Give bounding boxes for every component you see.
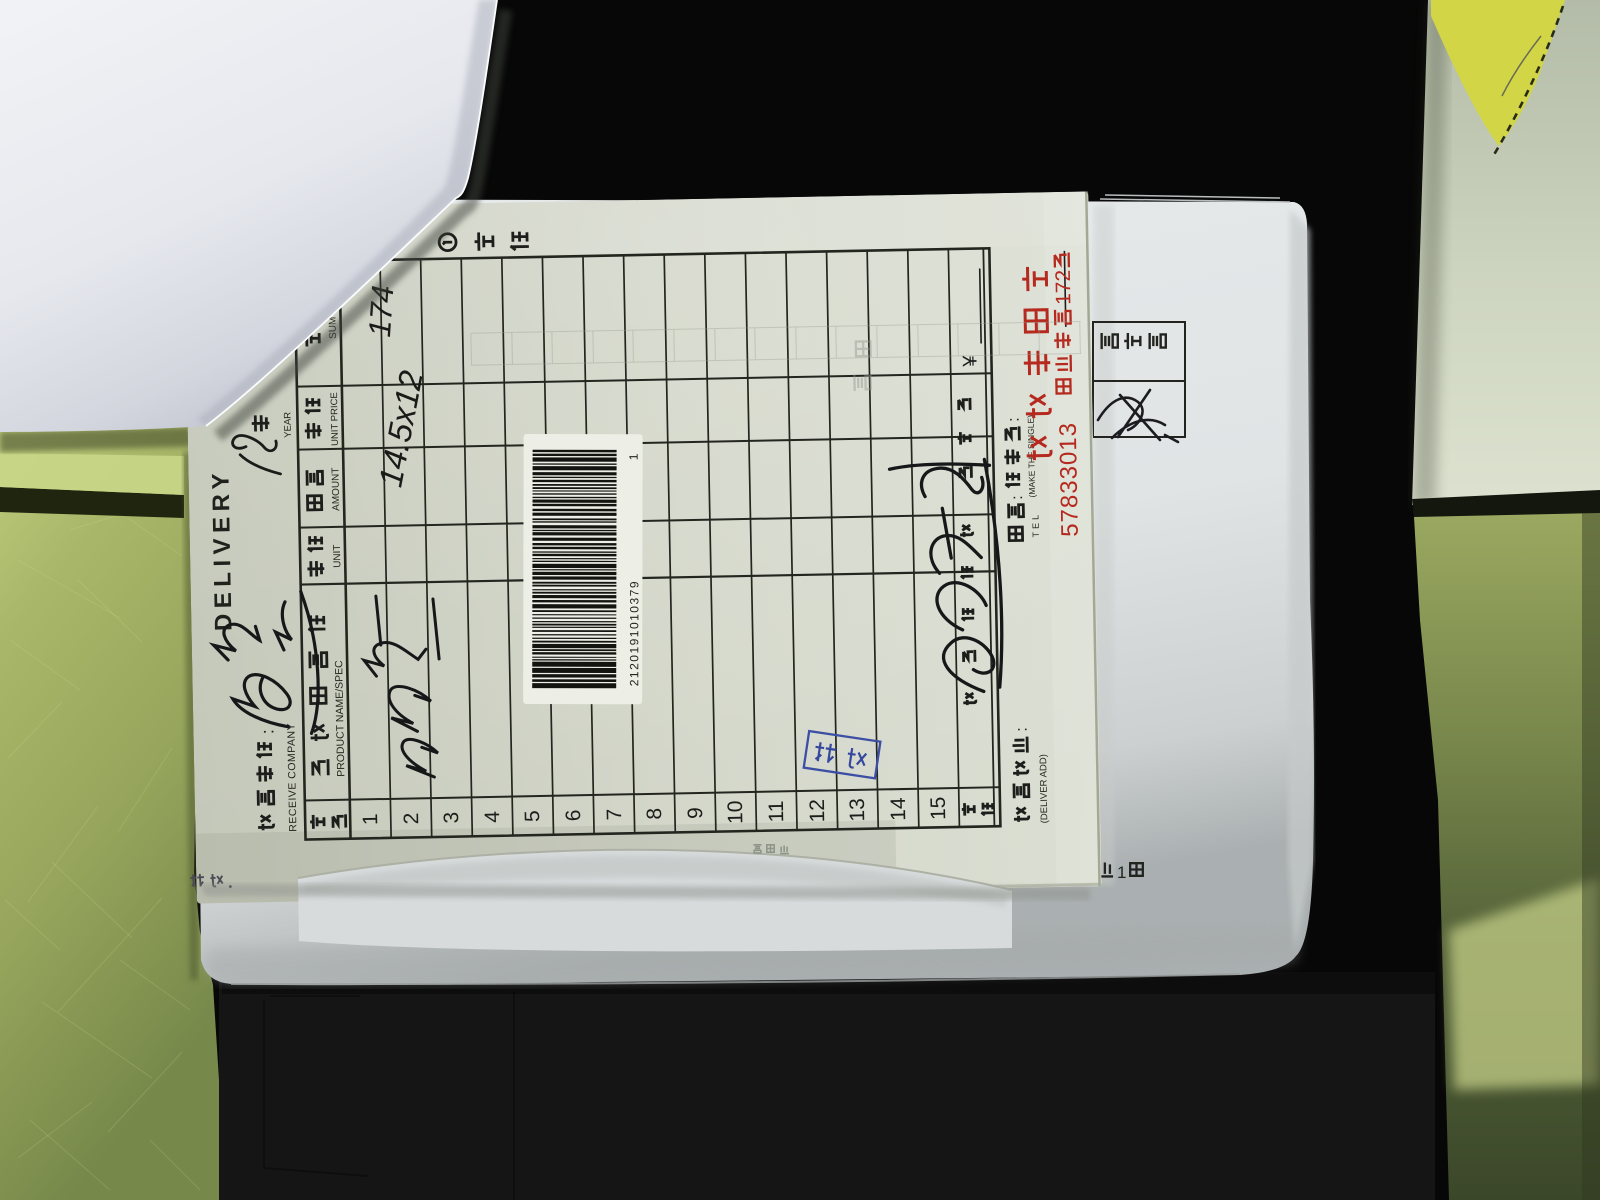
svg-text:UNIT PRICE: UNIT PRICE (329, 392, 341, 446)
svg-text:174: 174 (362, 284, 400, 338)
svg-text:15: 15 (927, 796, 950, 820)
svg-text:DELIVERY: DELIVERY (207, 468, 237, 632)
svg-text:PRODUCT NAME/SPEC: PRODUCT NAME/SPEC (333, 660, 347, 777)
svg-text::: : (1006, 417, 1023, 422)
svg-text:1: 1 (627, 453, 641, 460)
svg-text:2120191010379: 2120191010379 (627, 580, 641, 686)
svg-text:11: 11 (765, 800, 788, 822)
svg-text:(DELIVER ADD): (DELIVER ADD) (1038, 754, 1050, 823)
svg-text:AMOUNT: AMOUNT (330, 467, 342, 511)
svg-text:5: 5 (521, 810, 544, 822)
svg-text:12: 12 (806, 799, 829, 823)
svg-text::: : (1014, 727, 1031, 732)
svg-text:14: 14 (887, 797, 910, 821)
svg-text:57833013: 57833013 (1055, 422, 1084, 537)
svg-text:4: 4 (481, 811, 504, 823)
svg-text:RECEIVE COMPANY: RECEIVE COMPANY (285, 723, 299, 832)
svg-text:3: 3 (440, 812, 463, 824)
svg-text:¥: ¥ (959, 354, 981, 367)
svg-text:10: 10 (724, 800, 747, 824)
svg-text:1: 1 (1117, 863, 1126, 882)
svg-text:1: 1 (359, 813, 382, 825)
svg-text:YEAR: YEAR (282, 412, 293, 438)
svg-text::: : (257, 729, 277, 734)
svg-text::: : (1009, 495, 1026, 500)
svg-text:9: 9 (684, 807, 707, 819)
svg-text:13: 13 (846, 798, 869, 822)
svg-text:UNIT: UNIT (332, 544, 343, 568)
svg-text:6: 6 (562, 809, 585, 821)
svg-text:172: 172 (1052, 270, 1076, 305)
svg-text:TEL: TEL (1030, 512, 1040, 538)
svg-text:2: 2 (400, 812, 423, 824)
svg-text:SUM: SUM (328, 317, 339, 339)
svg-text:7: 7 (603, 809, 626, 821)
svg-text:8: 8 (643, 808, 666, 820)
